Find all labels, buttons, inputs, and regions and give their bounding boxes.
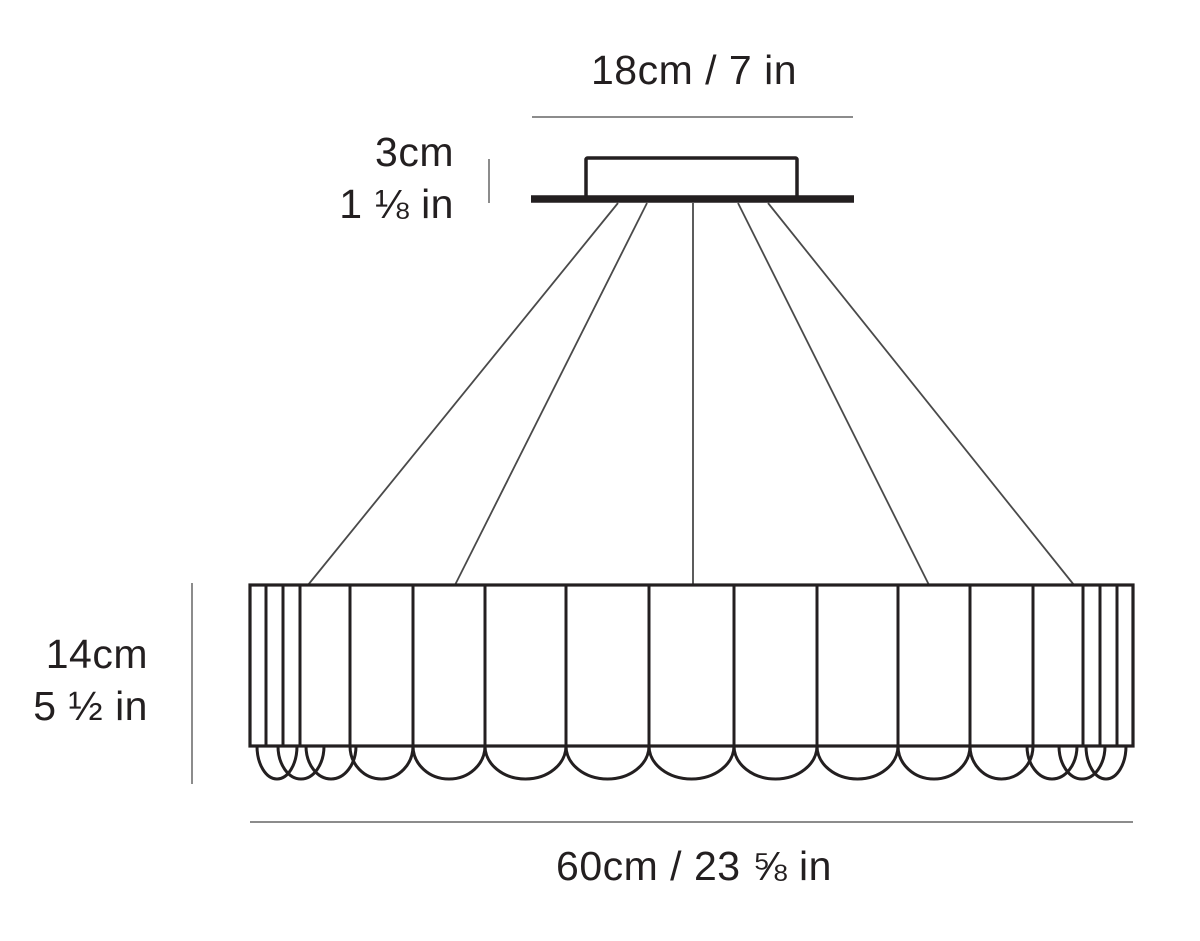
suspension-wire [768, 203, 1074, 585]
lamp-tube-scallop [898, 746, 970, 779]
canopy-height-cm: 3cm [339, 126, 454, 178]
lamp-tube-scallop [734, 746, 817, 779]
body-height-cm: 14cm [33, 628, 148, 680]
body-width-label: 60cm / 23 ⅝ in [556, 840, 832, 892]
suspension-wire [738, 203, 929, 585]
canopy-height-in: 1 ⅛ in [339, 178, 454, 230]
lamp-tube-scallop [350, 746, 413, 779]
lamp-dimension-diagram: 18cm / 7 in 3cm 1 ⅛ in 14cm 5 ½ in 60cm … [0, 0, 1200, 941]
body-height-in: 5 ½ in [33, 680, 148, 732]
lamp-tube-scallop [970, 746, 1033, 779]
lamp-body-outline [250, 585, 1133, 746]
canopy-height-label: 3cm 1 ⅛ in [339, 126, 454, 230]
lamp-tube-scallop [817, 746, 898, 779]
lamp-tube-scallop [649, 746, 734, 779]
lamp-tube-scallop [566, 746, 649, 779]
diagram-svg [0, 0, 1200, 941]
lamp-tube-scallop [413, 746, 485, 779]
suspension-wire [455, 203, 647, 585]
body-height-label: 14cm 5 ½ in [33, 628, 148, 732]
canopy-width-label: 18cm / 7 in [591, 44, 797, 96]
lamp-tube-scallop [485, 746, 566, 779]
suspension-wire [308, 203, 618, 585]
ceiling-canopy [586, 158, 797, 198]
